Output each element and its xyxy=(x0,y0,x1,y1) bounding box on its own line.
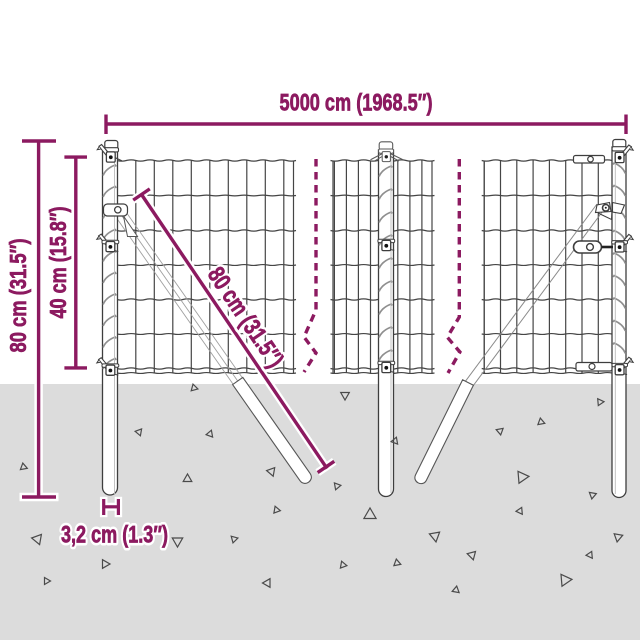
svg-text:80 cm (31.5″): 80 cm (31.5″) xyxy=(202,262,289,372)
svg-text:3,2 cm (1.3″): 3,2 cm (1.3″) xyxy=(61,522,168,549)
svg-text:40 cm (15.8″): 40 cm (15.8″) xyxy=(45,207,71,319)
svg-text:80 cm (31.5″): 80 cm (31.5″) xyxy=(5,239,31,353)
svg-text:5000 cm (1968.5″): 5000 cm (1968.5″) xyxy=(280,90,433,117)
